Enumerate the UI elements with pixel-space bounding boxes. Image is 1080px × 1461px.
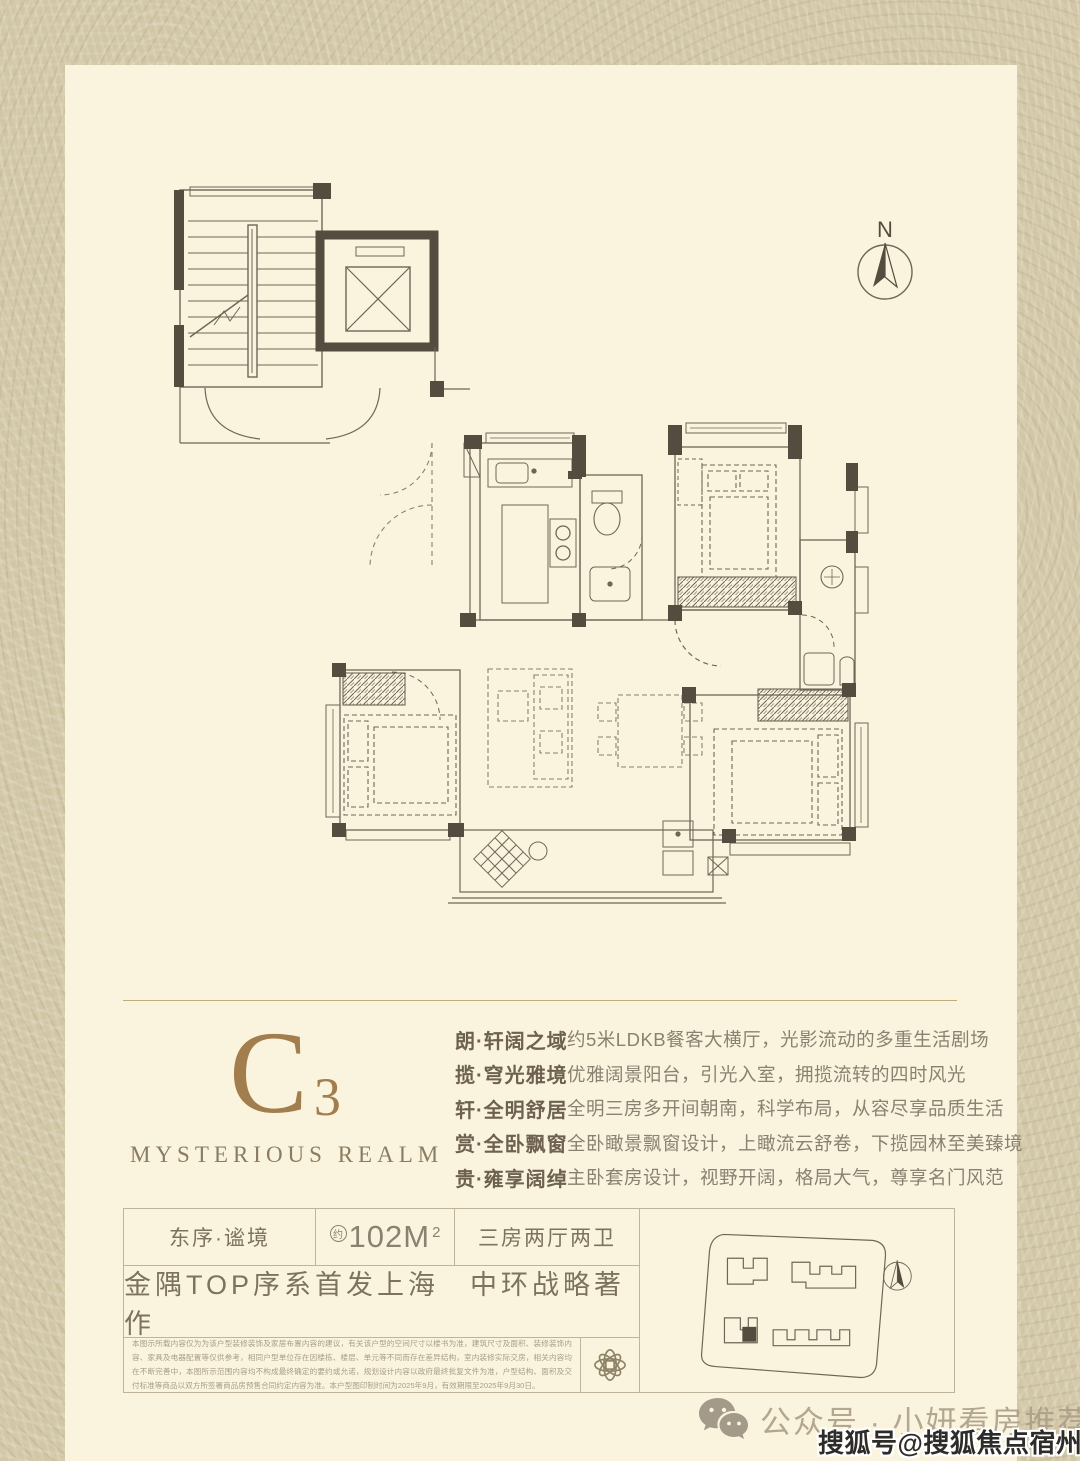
unit-area-cell: 约 102M 2 (315, 1208, 455, 1266)
balcony (448, 821, 850, 903)
kitchen (464, 443, 580, 620)
entry-lobby (180, 347, 470, 443)
feature-text: 主卧套房设计，视野开阔，格局大气，尊享名门风范 (567, 1164, 1004, 1190)
site-boundary (702, 1234, 886, 1377)
unit-brand: C 3 MYSTERIOUS REALM (130, 1018, 440, 1168)
north-label: N (877, 217, 893, 242)
feature-row: 轩·全明舒居 全明三房多开间朝南，科学布局，从容尽享品质生活 (455, 1091, 960, 1126)
site-plan (640, 1208, 954, 1393)
site-north-needle (883, 1260, 911, 1290)
building-outline (727, 1258, 767, 1284)
unit-area: 约 102M 2 (330, 1219, 441, 1255)
unit-name-cell: 东序·谧境 (123, 1208, 316, 1266)
feature-text: 全明三房多开间朝南，科学布局，从容尽享品质生活 (567, 1095, 1004, 1121)
feature-row: 赏·全卧飘窗 全卧瞰景飘窗设计，上瞰流云舒卷，下揽园林至美臻境 (455, 1126, 960, 1161)
tagline-cell: 金隅TOP序系首发上海 中环战略著作 (123, 1265, 640, 1338)
info-table: 东序·谧境 约 102M 2 三房两厅两卫 金隅TOP序系首发上海 中环战略著作… (123, 1208, 955, 1393)
hall-door-swings (370, 443, 432, 567)
master-bedroom (690, 689, 868, 840)
living-dining-room (488, 669, 702, 787)
feature-text: 优雅阔景阳台，引光入室，拥揽流转的四时风光 (567, 1061, 966, 1087)
knot-logo-icon (588, 1343, 632, 1387)
bedroom-secondary-north (675, 447, 800, 610)
section-divider (123, 1000, 957, 1001)
building-outline (773, 1330, 850, 1346)
feature-text: 约5米LDKB餐客大横厅，光影流动的多重生活剧场 (567, 1026, 989, 1052)
feature-label: 赏·全卧飘窗 (455, 1128, 567, 1157)
elevator (320, 235, 434, 347)
disclaimer-text: 本图示所载内容仅为为该户型装修装饰及家居布置内容的建议，有关该户型的空间尺寸以楼… (132, 1337, 572, 1393)
feature-label: 贵·雍享阔绰 (455, 1163, 567, 1192)
unit-letter: C (229, 1019, 308, 1128)
unit-number: 3 (314, 1070, 341, 1124)
hallway (470, 443, 800, 666)
wechat-icon (698, 1396, 750, 1442)
building-outline (792, 1262, 856, 1288)
master-bathroom (800, 540, 855, 690)
unit-layout-cell: 三房两厅两卫 (454, 1208, 640, 1266)
unit-subtitle: MYSTERIOUS REALM (130, 1142, 440, 1168)
stair-core (180, 187, 322, 387)
sohu-watermark: 搜狐号@搜狐焦点宿州站 (818, 1423, 1080, 1460)
feature-label: 揽·穹光雅境 (455, 1059, 567, 1088)
unit-code: C 3 (130, 1018, 440, 1128)
feature-text: 全卧瞰景飘窗设计，上瞰流云舒卷，下揽园林至美臻境 (567, 1130, 1023, 1156)
highlighted-unit (742, 1327, 756, 1342)
area-value: 102M (349, 1219, 431, 1255)
bedroom-secondary-west (326, 670, 460, 840)
feature-label: 轩·全明舒居 (455, 1094, 567, 1123)
logo-cell (580, 1337, 640, 1393)
feature-row: 朗·轩阔之域 约5米LDKB餐客大横厅，光影流动的多重生活剧场 (455, 1022, 960, 1057)
feature-list: 朗·轩阔之域 约5米LDKB餐客大横厅，光影流动的多重生活剧场 揽·穹光雅境 优… (455, 1022, 960, 1195)
north-compass-icon: N (858, 217, 912, 299)
feature-label: 朗·轩阔之域 (455, 1025, 567, 1054)
structural-walls (174, 183, 858, 843)
floor-plan: N (130, 175, 975, 945)
site-plan-cell (639, 1208, 955, 1393)
feature-row: 揽·穹光雅境 优雅阔景阳台，引光入室，拥揽流转的四时风光 (455, 1057, 960, 1092)
guest-bathroom (580, 475, 642, 620)
area-approx-mark: 约 (330, 1225, 347, 1242)
feature-row: 贵·雍享阔绰 主卧套房设计，视野开阔，格局大气，尊享名门风范 (455, 1160, 960, 1195)
disclaimer-cell: 本图示所载内容仅为为该户型装修装饰及家居布置内容的建议，有关该户型的空间尺寸以楼… (123, 1337, 581, 1393)
area-superscript: 2 (432, 1224, 440, 1241)
